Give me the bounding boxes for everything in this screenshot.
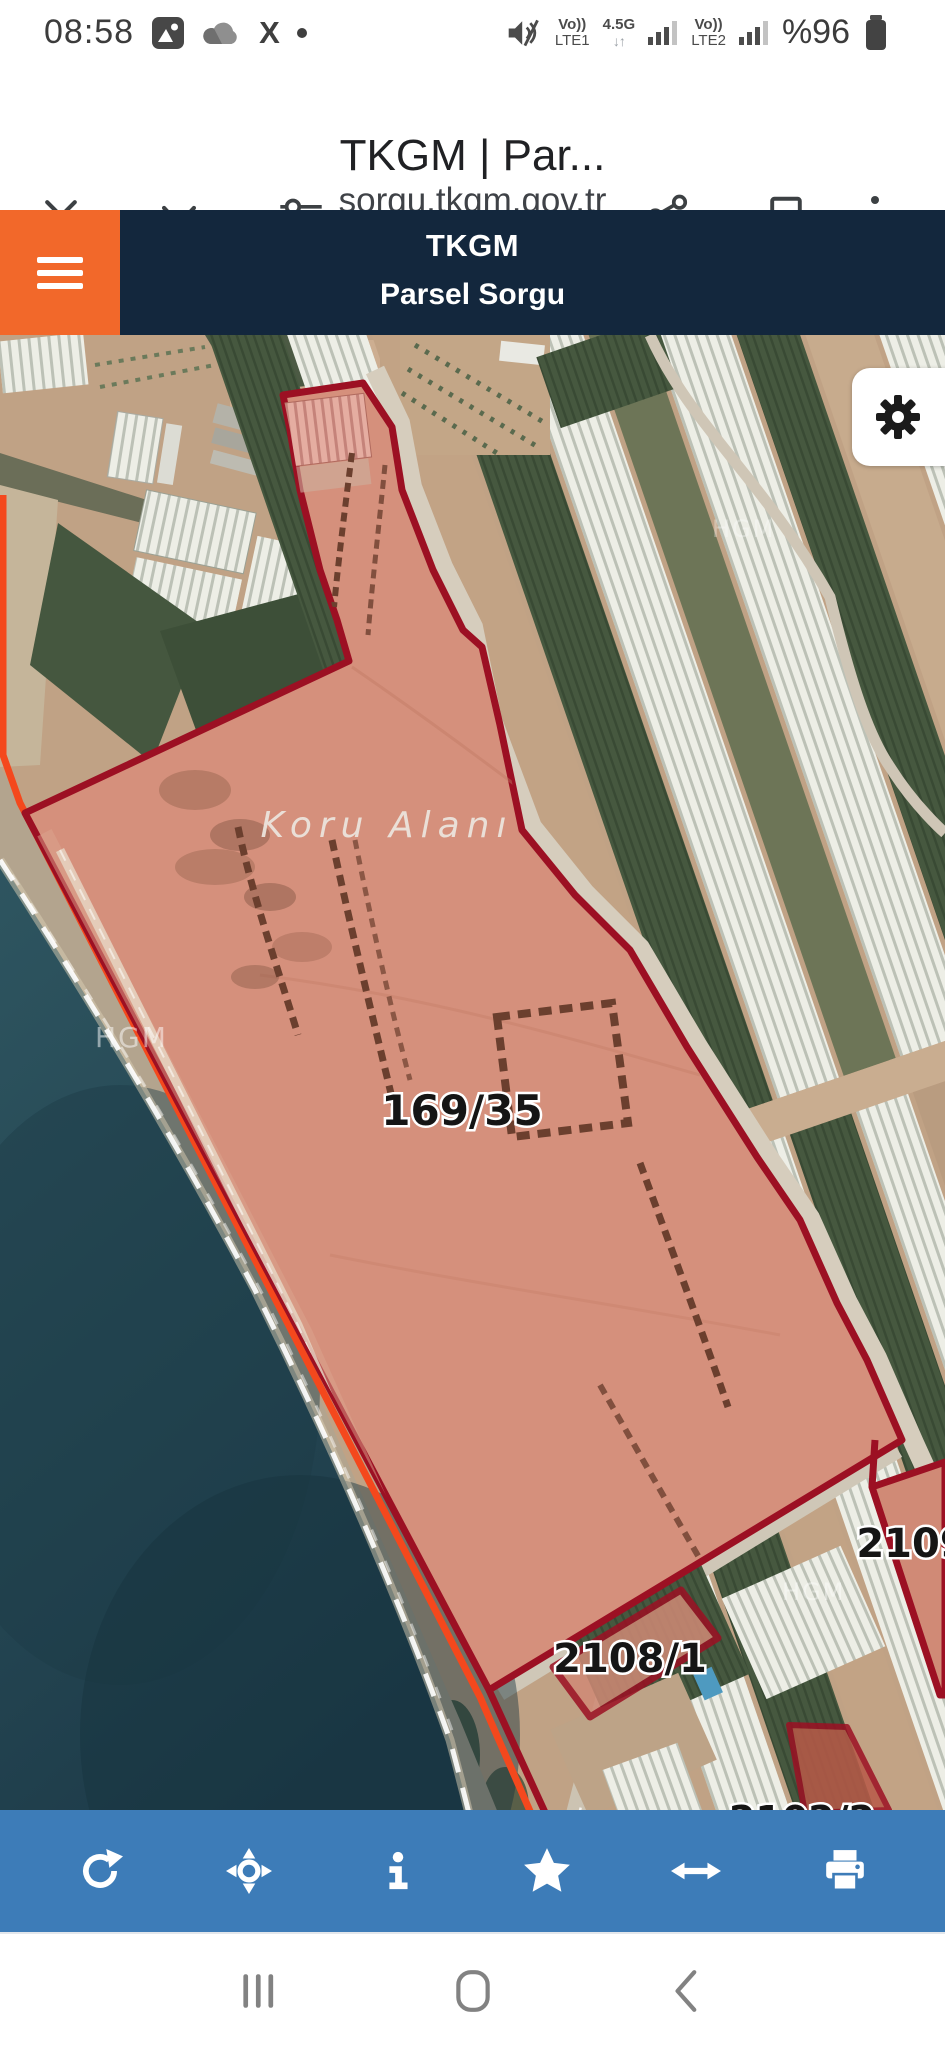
back-button[interactable] (660, 1963, 716, 2019)
recents-button[interactable] (230, 1963, 286, 2019)
app-subtitle: Parsel Sorgu (0, 278, 945, 312)
measure-button[interactable] (670, 1845, 722, 1897)
mute-icon (506, 14, 542, 52)
refresh-icon (77, 1848, 123, 1894)
android-nav-bar (0, 1932, 945, 2048)
map-label-area: Koru Alanı (261, 805, 514, 846)
app-title: TKGM (0, 228, 945, 264)
hamburger-menu-button[interactable] (0, 210, 120, 335)
map-toolbar (0, 1810, 945, 1932)
imagery-watermark: HGM (782, 1578, 845, 1606)
favorite-button[interactable] (521, 1845, 573, 1897)
battery-percentage: %96 (782, 13, 850, 52)
signal-bars-1-icon (648, 19, 678, 46)
status-bar: 08:58 X Vo))LTE1 4.5G↓↑ (0, 0, 945, 65)
back-chevron-icon (665, 1968, 711, 2014)
x-app-notification-icon: X (259, 15, 280, 51)
signal-bars-2-icon (739, 19, 769, 46)
carrier2-status: Vo))LTE2 (691, 17, 726, 49)
page-title: TKGM | Par... (0, 131, 945, 181)
locate-button[interactable] (223, 1845, 275, 1897)
gear-icon (852, 368, 945, 466)
info-icon (377, 1848, 419, 1894)
hamburger-icon (37, 250, 83, 296)
print-button[interactable] (819, 1845, 871, 1897)
map-label-parcel-2109: 2109 (856, 1521, 945, 1567)
refresh-button[interactable] (74, 1845, 126, 1897)
cloud-notification-icon (202, 18, 242, 48)
carrier1-status: Vo))LTE1 (555, 17, 590, 49)
map-label-parcel-2108: 2108/1 (553, 1636, 707, 1682)
notification-dot-icon (297, 28, 307, 38)
map-canvas[interactable]: HGM HGM HGM Koru Alanı 169/35 2108/1 210… (0, 335, 945, 1932)
printer-icon (822, 1848, 868, 1894)
arrows-horizontal-icon (671, 1848, 721, 1894)
phone-screen: 08:58 X Vo))LTE1 4.5G↓↑ (0, 0, 945, 2048)
home-icon (450, 1968, 496, 2014)
parcel-2109-edge (872, 1440, 875, 1487)
info-button[interactable] (372, 1845, 424, 1897)
map-label-parcel-main: 169/35 (381, 1086, 542, 1135)
photo-notification-icon (151, 16, 185, 50)
battery-icon (863, 14, 889, 52)
imagery-watermark: HGM (712, 515, 775, 543)
clock: 08:58 (44, 13, 134, 52)
browser-toolbar: TKGM | Par... sorgu.tkgm.gov.tr (0, 65, 945, 210)
crosshair-icon (226, 1848, 272, 1894)
imagery-watermark: HGM (95, 1021, 168, 1054)
network-speed-status: 4.5G↓↑ (603, 17, 636, 49)
home-button[interactable] (445, 1963, 501, 2019)
recents-icon (235, 1968, 281, 2014)
map-settings-button[interactable] (852, 368, 945, 466)
star-icon (523, 1847, 571, 1895)
app-header: TKGM Parsel Sorgu (0, 210, 945, 335)
